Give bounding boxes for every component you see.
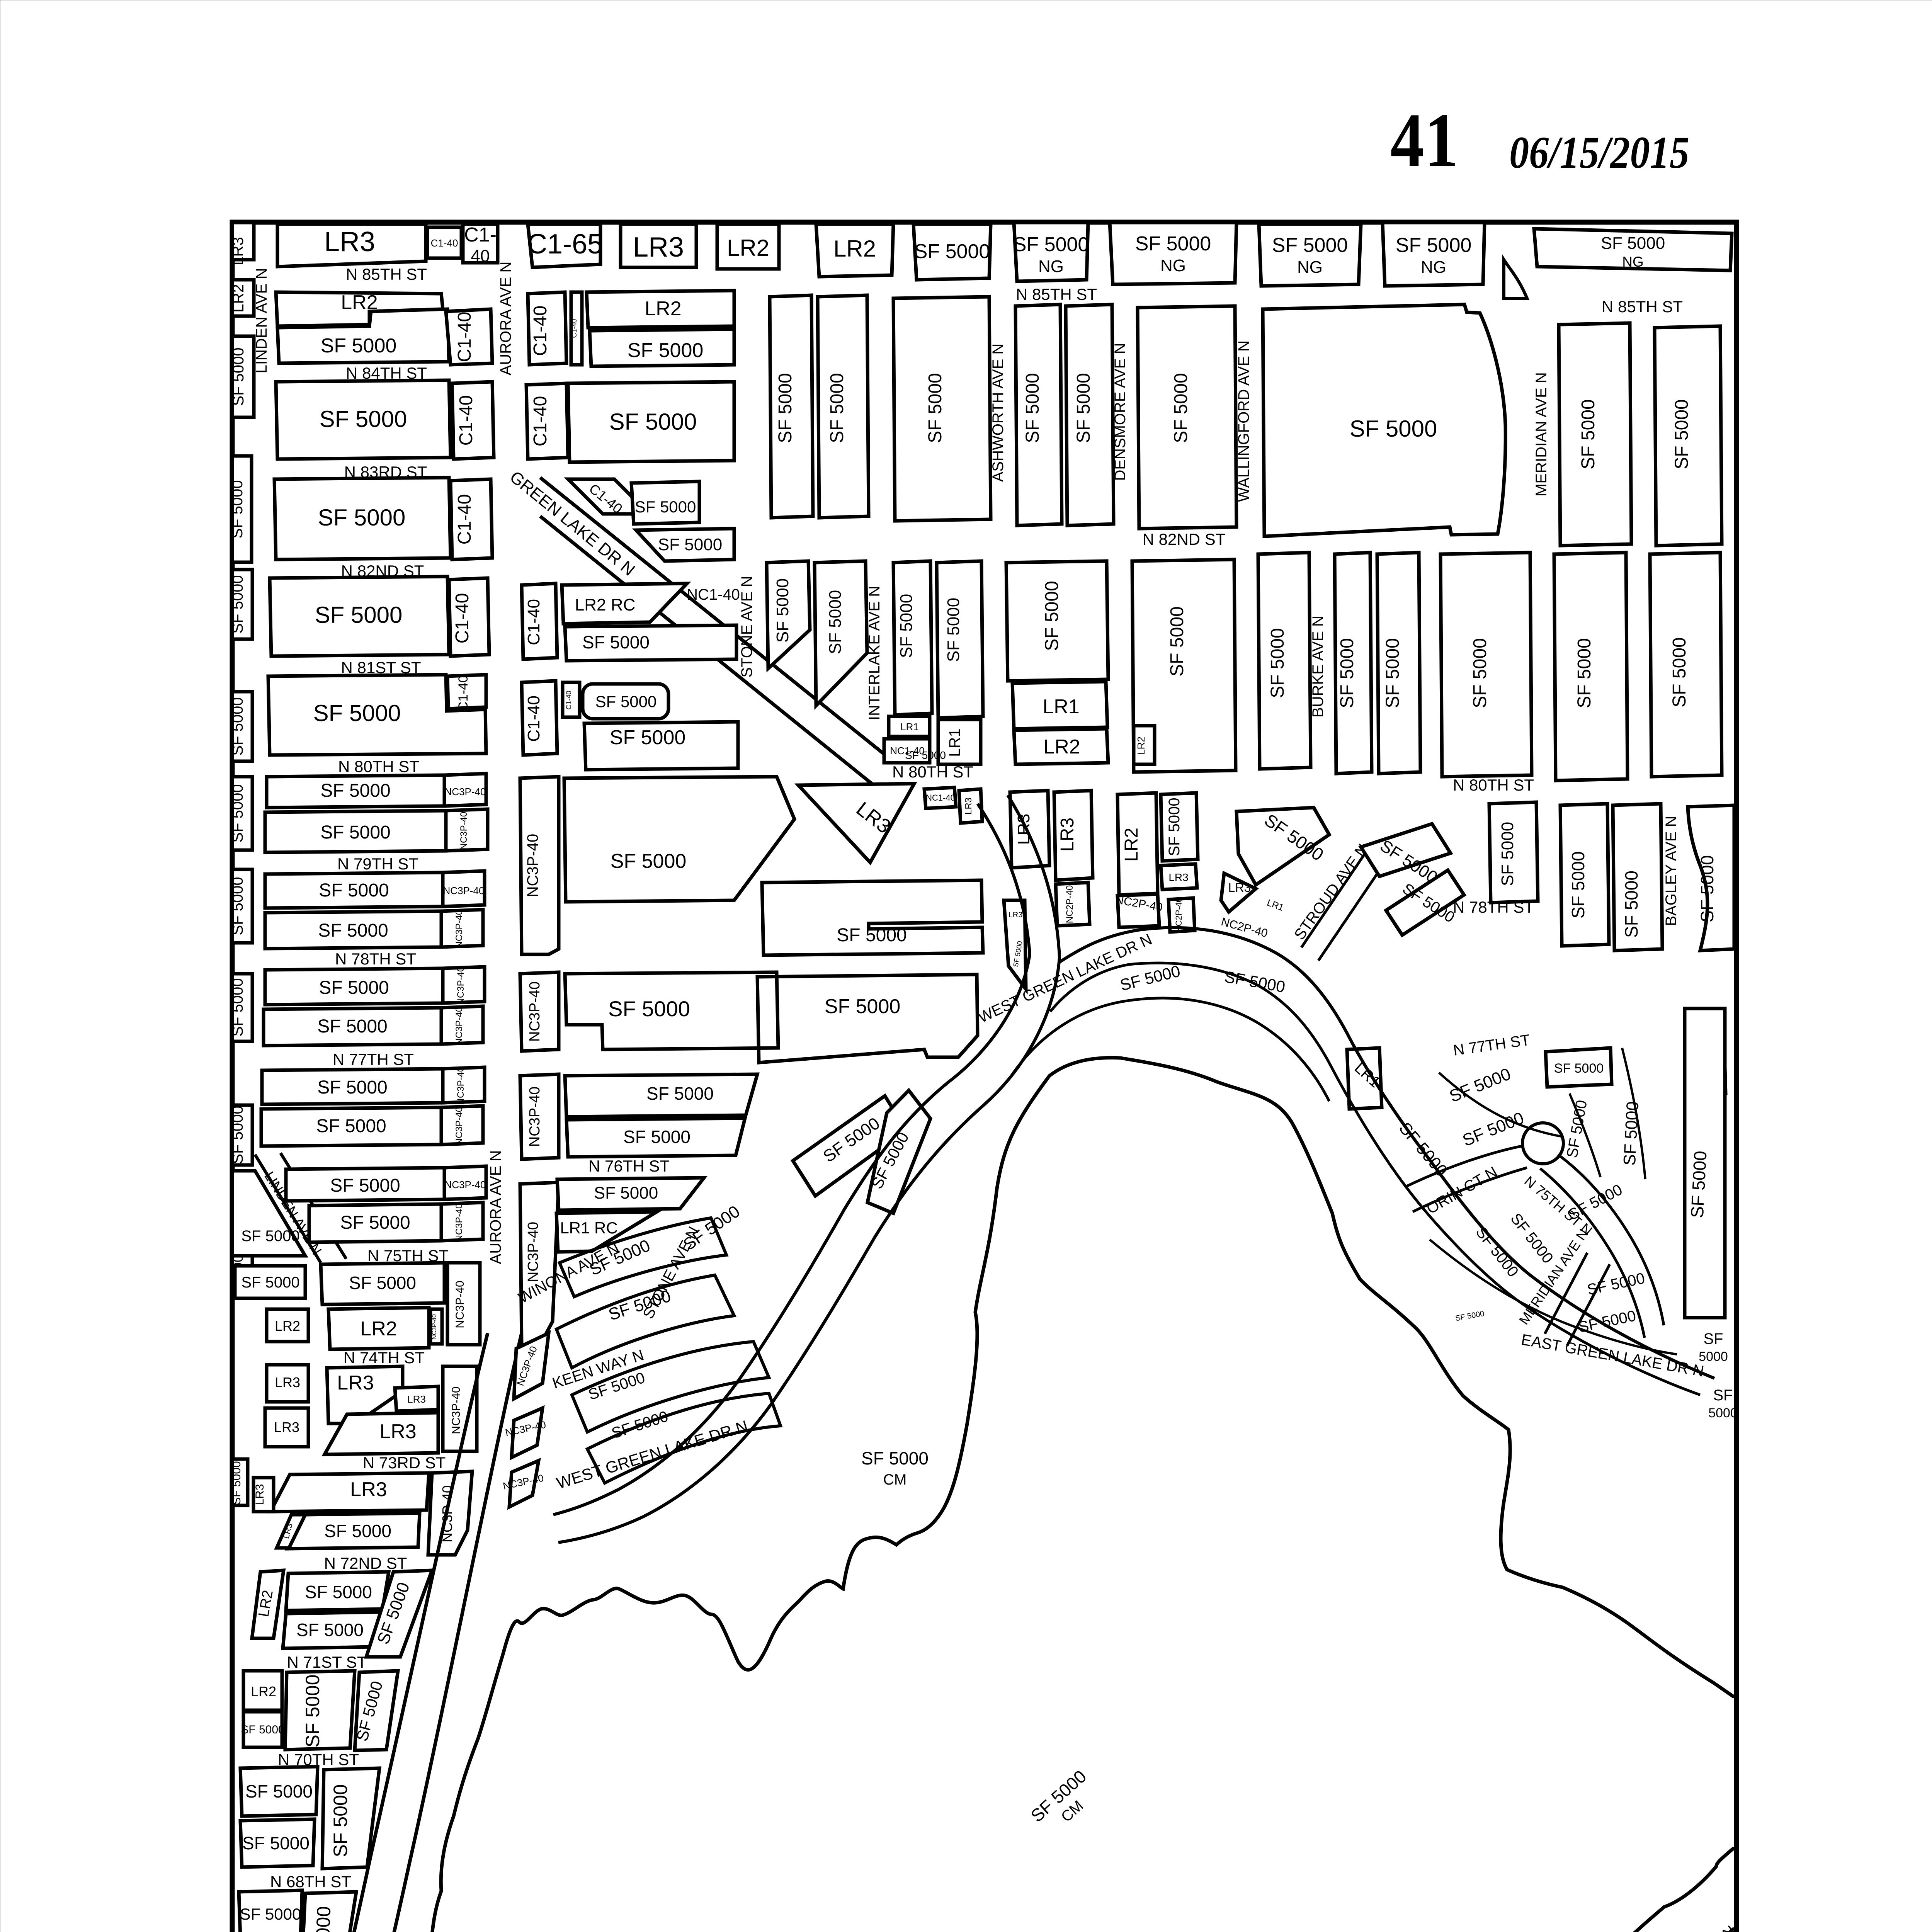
svg-text:N 85TH ST: N 85TH ST	[1016, 285, 1097, 303]
svg-text:C1-40: C1-40	[452, 593, 473, 644]
svg-text:C1-40: C1-40	[570, 319, 578, 338]
svg-text:LR2: LR2	[251, 1684, 276, 1699]
svg-text:LR2: LR2	[230, 284, 247, 312]
svg-text:INTERLAKE AVE N: INTERLAKE AVE N	[866, 586, 883, 720]
svg-text:SF 5000: SF 5000	[773, 578, 792, 643]
svg-text:SF 5000: SF 5000	[1166, 798, 1183, 856]
svg-text:SF 5000: SF 5000	[608, 997, 690, 1021]
svg-text:LR3: LR3	[350, 1478, 387, 1501]
svg-text:LR3: LR3	[253, 1484, 266, 1505]
svg-text:SF 5000: SF 5000	[321, 335, 397, 357]
svg-text:N 80TH ST: N 80TH ST	[892, 763, 973, 781]
svg-text:NC3P-40: NC3P-40	[454, 1204, 464, 1242]
svg-text:NC3P-40: NC3P-40	[456, 1067, 466, 1105]
svg-text:BURKE AVE N: BURKE AVE N	[1310, 616, 1327, 718]
svg-text:SF 5000: SF 5000	[330, 1784, 351, 1857]
svg-text:NC3P-40: NC3P-40	[443, 885, 485, 896]
svg-text:LR2: LR2	[275, 1318, 300, 1334]
svg-text:SF 5000: SF 5000	[1013, 233, 1089, 256]
svg-text:SF 5000: SF 5000	[897, 594, 916, 658]
svg-text:N 72ND ST: N 72ND ST	[324, 1554, 407, 1572]
svg-text:SF 5000: SF 5000	[623, 1127, 690, 1147]
svg-text:C1-40: C1-40	[454, 494, 475, 545]
svg-text:LR3: LR3	[275, 1374, 300, 1390]
svg-text:SF 5000: SF 5000	[925, 373, 946, 443]
svg-text:SF 5000: SF 5000	[245, 1781, 313, 1801]
svg-text:NG: NG	[1038, 257, 1064, 276]
svg-text:SF 5000: SF 5000	[1073, 373, 1094, 443]
svg-text:SF: SF	[1713, 1387, 1733, 1404]
svg-text:NC2P-40: NC2P-40	[1065, 885, 1075, 923]
svg-text:SF 5000: SF 5000	[914, 240, 990, 263]
svg-text:NG: NG	[1297, 258, 1323, 277]
svg-text:N 71ST ST: N 71ST ST	[287, 1653, 367, 1671]
svg-text:SF 5000: SF 5000	[229, 978, 246, 1036]
svg-text:C1-65: C1-65	[527, 229, 603, 260]
svg-text:SF 5000: SF 5000	[349, 1273, 416, 1293]
svg-text:NC1-40: NC1-40	[687, 586, 740, 603]
svg-text:SF 5000: SF 5000	[1498, 822, 1517, 886]
svg-text:C1-40: C1-40	[530, 306, 551, 356]
svg-text:SF 5000: SF 5000	[320, 822, 390, 843]
svg-text:SF 5000: SF 5000	[315, 602, 403, 628]
svg-text:SF 5000: SF 5000	[1135, 233, 1211, 255]
svg-text:C1-40: C1-40	[454, 312, 475, 362]
svg-text:N 82ND ST: N 82ND ST	[1143, 530, 1226, 548]
svg-text:SF 5000: SF 5000	[775, 373, 796, 443]
svg-text:NC3P-40: NC3P-40	[445, 1179, 486, 1190]
svg-text:LR2: LR2	[1121, 828, 1142, 862]
svg-text:N 68TH ST: N 68TH ST	[270, 1872, 351, 1891]
svg-text:C1-40: C1-40	[530, 396, 551, 447]
svg-text:SF 5000: SF 5000	[1022, 373, 1043, 443]
svg-text:SF 5000: SF 5000	[1697, 855, 1717, 922]
svg-text:SF 5000: SF 5000	[635, 498, 696, 516]
svg-text:NC3P-40: NC3P-40	[450, 1386, 463, 1434]
svg-text:SF 5000: SF 5000	[658, 535, 722, 554]
svg-text:LR3: LR3	[230, 237, 247, 265]
svg-text:N 73RD ST: N 73RD ST	[363, 1454, 446, 1472]
svg-text:SF 5000: SF 5000	[646, 1083, 714, 1104]
svg-text:N 79TH ST: N 79TH ST	[337, 855, 418, 873]
svg-text:SF 5000: SF 5000	[302, 1674, 323, 1747]
svg-text:NC3P-40: NC3P-40	[454, 910, 464, 948]
svg-text:SF 5000: SF 5000	[611, 850, 687, 872]
svg-text:SF 5000: SF 5000	[229, 1105, 246, 1164]
svg-text:5000: 5000	[1699, 1349, 1728, 1364]
svg-text:N 80TH ST: N 80TH ST	[338, 757, 419, 776]
svg-text:SF: SF	[1703, 1330, 1723, 1347]
svg-text:SF 5000: SF 5000	[1554, 1061, 1604, 1076]
svg-text:06/15/2015: 06/15/2015	[1509, 127, 1689, 178]
svg-text:STONE AVE N: STONE AVE N	[738, 576, 755, 677]
svg-text:NC3P-40: NC3P-40	[527, 1087, 543, 1147]
svg-text:SF 5000: SF 5000	[594, 1184, 658, 1202]
svg-text:SF 5000: SF 5000	[340, 1213, 410, 1233]
svg-text:SF 5000: SF 5000	[905, 749, 946, 761]
svg-text:SF 5000: SF 5000	[1574, 638, 1595, 708]
svg-text:LR2: LR2	[1043, 736, 1080, 758]
svg-text:NC3P-40: NC3P-40	[454, 1107, 464, 1145]
svg-text:C1-40: C1-40	[456, 675, 471, 711]
svg-text:SF 5000: SF 5000	[319, 880, 389, 901]
svg-text:C1-40: C1-40	[524, 599, 543, 645]
svg-text:SF 5000: SF 5000	[317, 1016, 387, 1037]
svg-text:SF 5000: SF 5000	[944, 598, 963, 662]
svg-text:LR1: LR1	[946, 728, 963, 757]
svg-text:NC3P-40: NC3P-40	[459, 812, 469, 850]
svg-text:LR3: LR3	[274, 1419, 299, 1435]
svg-text:LR3: LR3	[963, 798, 974, 815]
svg-text:SF 5000: SF 5000	[1167, 606, 1187, 676]
svg-text:SF 5000: SF 5000	[311, 1906, 335, 1932]
svg-text:LR2: LR2	[360, 1318, 397, 1340]
svg-text:C1-40: C1-40	[431, 237, 458, 249]
svg-text:AURORA AVE N: AURORA AVE N	[497, 262, 514, 376]
svg-text:40: 40	[471, 247, 490, 265]
svg-text:C1-40: C1-40	[565, 690, 573, 709]
svg-text:SF 5000: SF 5000	[1621, 871, 1641, 938]
svg-text:SF 5000: SF 5000	[1568, 851, 1588, 918]
svg-text:LR2: LR2	[727, 235, 769, 261]
svg-text:SF 5000: SF 5000	[230, 1461, 243, 1505]
svg-text:NC1-40: NC1-40	[926, 793, 955, 803]
svg-text:N 85TH ST: N 85TH ST	[346, 265, 427, 283]
svg-text:SF 5000: SF 5000	[320, 781, 390, 801]
svg-text:SF 5000: SF 5000	[296, 1620, 364, 1640]
svg-text:ASHWORTH AVE N: ASHWORTH AVE N	[990, 344, 1007, 482]
svg-text:SF 5000: SF 5000	[313, 700, 401, 726]
svg-text:WALLINGFORD AVE N: WALLINGFORD AVE N	[1235, 340, 1252, 502]
svg-text:SF 5000: SF 5000	[1470, 638, 1490, 708]
svg-text:SF 5000: SF 5000	[1337, 638, 1357, 708]
svg-text:SF 5000: SF 5000	[229, 480, 246, 538]
svg-text:SF 5000: SF 5000	[861, 1448, 929, 1468]
svg-text:LR3: LR3	[633, 232, 684, 263]
svg-text:SF 5000: SF 5000	[318, 920, 388, 941]
svg-text:SF 5000: SF 5000	[825, 995, 901, 1018]
svg-text:SF 5000: SF 5000	[1171, 373, 1191, 443]
svg-text:CM: CM	[883, 1471, 907, 1488]
svg-text:NC3P-40: NC3P-40	[456, 967, 466, 1005]
svg-text:SF 5000: SF 5000	[241, 1228, 299, 1245]
svg-text:LR3: LR3	[407, 1393, 426, 1405]
svg-text:SF 5000: SF 5000	[240, 1905, 301, 1923]
svg-text:C1-40: C1-40	[524, 696, 543, 742]
svg-text:SF 5000: SF 5000	[324, 1521, 391, 1541]
svg-text:LR3: LR3	[1228, 881, 1251, 895]
svg-text:SF 5000: SF 5000	[229, 697, 246, 755]
svg-text:NC3P-40: NC3P-40	[454, 1281, 466, 1328]
svg-text:SF 5000: SF 5000	[595, 692, 657, 711]
svg-text:NG: NG	[1421, 258, 1446, 277]
svg-text:NC3P-40: NC3P-40	[445, 786, 486, 798]
svg-text:41: 41	[1390, 98, 1458, 183]
svg-text:N 74TH ST: N 74TH ST	[344, 1349, 425, 1367]
svg-text:N 80TH ST: N 80TH ST	[1453, 776, 1534, 794]
svg-text:SF 5000: SF 5000	[1620, 1101, 1643, 1166]
svg-text:SF 5000: SF 5000	[609, 409, 697, 435]
svg-text:LR1: LR1	[1043, 696, 1079, 718]
svg-text:N 76TH ST: N 76TH ST	[588, 1157, 670, 1175]
svg-text:LR3: LR3	[1168, 871, 1188, 883]
svg-text:SF 5000: SF 5000	[1267, 628, 1288, 698]
svg-text:SF 5000: SF 5000	[318, 505, 406, 531]
svg-text:SF 5000: SF 5000	[316, 1116, 386, 1136]
svg-text:SF 5000: SF 5000	[1687, 1150, 1711, 1218]
svg-text:NC3P-40: NC3P-40	[527, 981, 543, 1042]
svg-text:SF 5000: SF 5000	[827, 373, 847, 443]
svg-text:SF 5000: SF 5000	[230, 347, 247, 406]
svg-text:LR3: LR3	[337, 1372, 374, 1394]
svg-text:SF 5000: SF 5000	[229, 575, 246, 633]
svg-text:SF 5000: SF 5000	[1672, 399, 1692, 469]
svg-text:LR1 RC: LR1 RC	[560, 1219, 617, 1237]
svg-text:SF 5000: SF 5000	[317, 1077, 387, 1098]
svg-text:LR3: LR3	[379, 1420, 416, 1443]
svg-text:DENSMORE AVE N: DENSMORE AVE N	[1112, 343, 1129, 481]
svg-text:C1-40: C1-40	[456, 395, 476, 446]
svg-text:5000: 5000	[1708, 1406, 1738, 1420]
svg-text:SF 5000: SF 5000	[241, 1723, 284, 1736]
svg-text:BAGLEY AVE N: BAGLEY AVE N	[1663, 816, 1680, 926]
svg-text:SF 5000: SF 5000	[1601, 234, 1665, 253]
svg-text:SF 5000: SF 5000	[229, 877, 246, 935]
svg-text:SF 5000: SF 5000	[319, 978, 389, 998]
svg-text:C1-: C1-	[464, 224, 497, 246]
svg-text:NG: NG	[1622, 254, 1644, 270]
svg-text:N 77TH ST: N 77TH ST	[333, 1050, 414, 1068]
svg-text:LR2: LR2	[1135, 736, 1147, 755]
svg-text:LR3: LR3	[1057, 818, 1078, 852]
svg-text:SF 5000: SF 5000	[1669, 637, 1690, 707]
svg-text:LR2: LR2	[645, 298, 681, 320]
svg-text:LR3: LR3	[324, 226, 375, 257]
svg-text:LINDEN AVE N: LINDEN AVE N	[253, 268, 270, 374]
svg-text:SF 5000: SF 5000	[628, 339, 704, 362]
svg-text:SF 5000: SF 5000	[582, 632, 650, 652]
svg-text:NG: NG	[1160, 256, 1186, 275]
svg-text:SF 5000: SF 5000	[1578, 399, 1599, 469]
svg-text:SF 5000: SF 5000	[242, 1833, 310, 1853]
svg-text:NC3P-40: NC3P-40	[524, 834, 541, 898]
svg-text:AURORA AVE N: AURORA AVE N	[487, 1150, 504, 1264]
svg-text:N 78TH ST: N 78TH ST	[335, 950, 416, 968]
svg-text:SF 5000: SF 5000	[1350, 416, 1437, 442]
svg-text:SF 5000: SF 5000	[330, 1175, 400, 1196]
svg-text:N 85TH ST: N 85TH ST	[1602, 298, 1683, 316]
svg-text:SF 5000: SF 5000	[241, 1274, 299, 1291]
svg-text:MERIDIAN AVE N: MERIDIAN AVE N	[1533, 372, 1550, 497]
svg-text:NC3P-40: NC3P-40	[454, 1007, 464, 1045]
svg-text:NC3P-40: NC3P-40	[525, 1222, 541, 1282]
svg-text:SF 5000: SF 5000	[1272, 234, 1348, 257]
svg-text:NC3P-40: NC3P-40	[431, 1314, 438, 1340]
svg-text:LR2 RC: LR2 RC	[575, 595, 636, 614]
svg-text:SF 5000: SF 5000	[1383, 638, 1403, 708]
svg-text:SF 5000: SF 5000	[1042, 581, 1062, 651]
svg-text:LR1: LR1	[900, 721, 919, 733]
svg-text:SF 5000: SF 5000	[229, 784, 246, 842]
svg-text:SF 5000: SF 5000	[610, 726, 686, 749]
svg-text:SF 5000: SF 5000	[320, 406, 407, 432]
svg-text:SF 5000: SF 5000	[305, 1582, 372, 1602]
svg-text:SF 5000: SF 5000	[1396, 234, 1472, 257]
svg-text:LR2: LR2	[833, 236, 876, 262]
svg-text:SF 5000: SF 5000	[826, 590, 845, 654]
svg-text:LR3: LR3	[1009, 911, 1023, 919]
svg-text:SF 5000: SF 5000	[837, 925, 906, 946]
